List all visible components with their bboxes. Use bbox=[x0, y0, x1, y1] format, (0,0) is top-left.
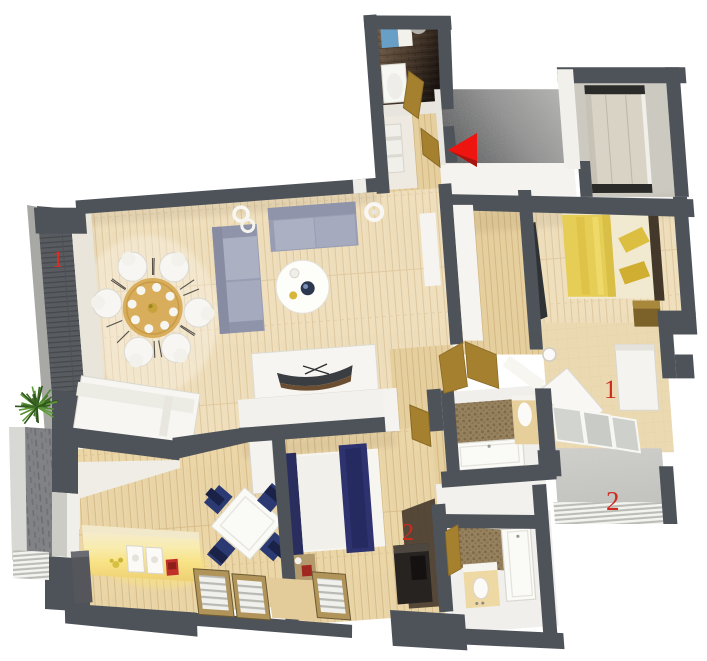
svg-text:1: 1 bbox=[52, 247, 64, 272]
svg-text:2: 2 bbox=[606, 486, 620, 516]
svg-text:1: 1 bbox=[604, 375, 617, 404]
svg-text:2: 2 bbox=[402, 520, 414, 546]
